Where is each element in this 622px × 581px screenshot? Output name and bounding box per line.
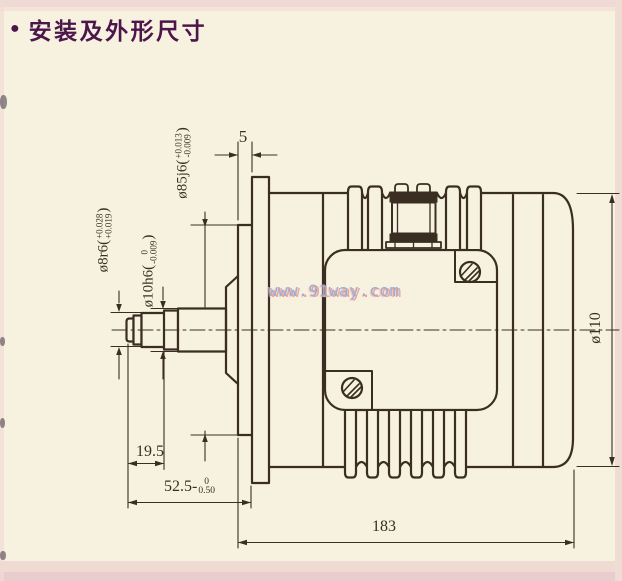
dim-total-shaft-length: 52.5-00.50 xyxy=(164,478,216,496)
dim-overall-length: 183 xyxy=(372,518,396,536)
fin xyxy=(411,411,422,478)
fin xyxy=(367,411,378,478)
terminal-band-top xyxy=(390,192,438,203)
terminal-cap xyxy=(417,184,430,192)
tolerance-stack: +0.013-0.009 xyxy=(175,133,192,158)
fin xyxy=(348,187,362,250)
dim-body-diameter: ø110 xyxy=(587,312,605,343)
fin xyxy=(389,411,400,478)
tolerance-stack: +0.028+0.019 xyxy=(96,214,113,239)
dim-shaft-tip-diameter: ø8r6(+0.028+0.019) xyxy=(96,208,113,273)
scanned-drawing-page: ● 安装及外形尺寸 xyxy=(0,0,622,581)
dim-spigot-diameter: ø85j6(+0.013-0.009) xyxy=(175,127,192,199)
fin xyxy=(446,187,460,250)
tolerance-stack: 0-0.009 xyxy=(141,241,158,264)
terminal-body xyxy=(392,203,436,234)
terminal-band-bottom xyxy=(390,234,438,243)
cooling-fins-bottom xyxy=(345,411,466,478)
fin xyxy=(455,411,466,478)
tolerance-stack: 00.50 xyxy=(198,478,215,496)
watermark: www.91way.com xyxy=(268,281,400,300)
dim-shaft-diameter: ø10h6(0-0.009) xyxy=(141,235,158,308)
fin xyxy=(368,187,382,250)
dim-spigot-length: 5 xyxy=(239,127,248,147)
fin xyxy=(345,411,356,478)
dim-shaft-tip-length: 19.5 xyxy=(136,443,164,461)
fin xyxy=(433,411,444,478)
dim-value: 52.5- xyxy=(164,478,197,496)
fin xyxy=(467,187,481,250)
terminal-box xyxy=(386,184,441,248)
terminal-cap xyxy=(395,184,408,192)
